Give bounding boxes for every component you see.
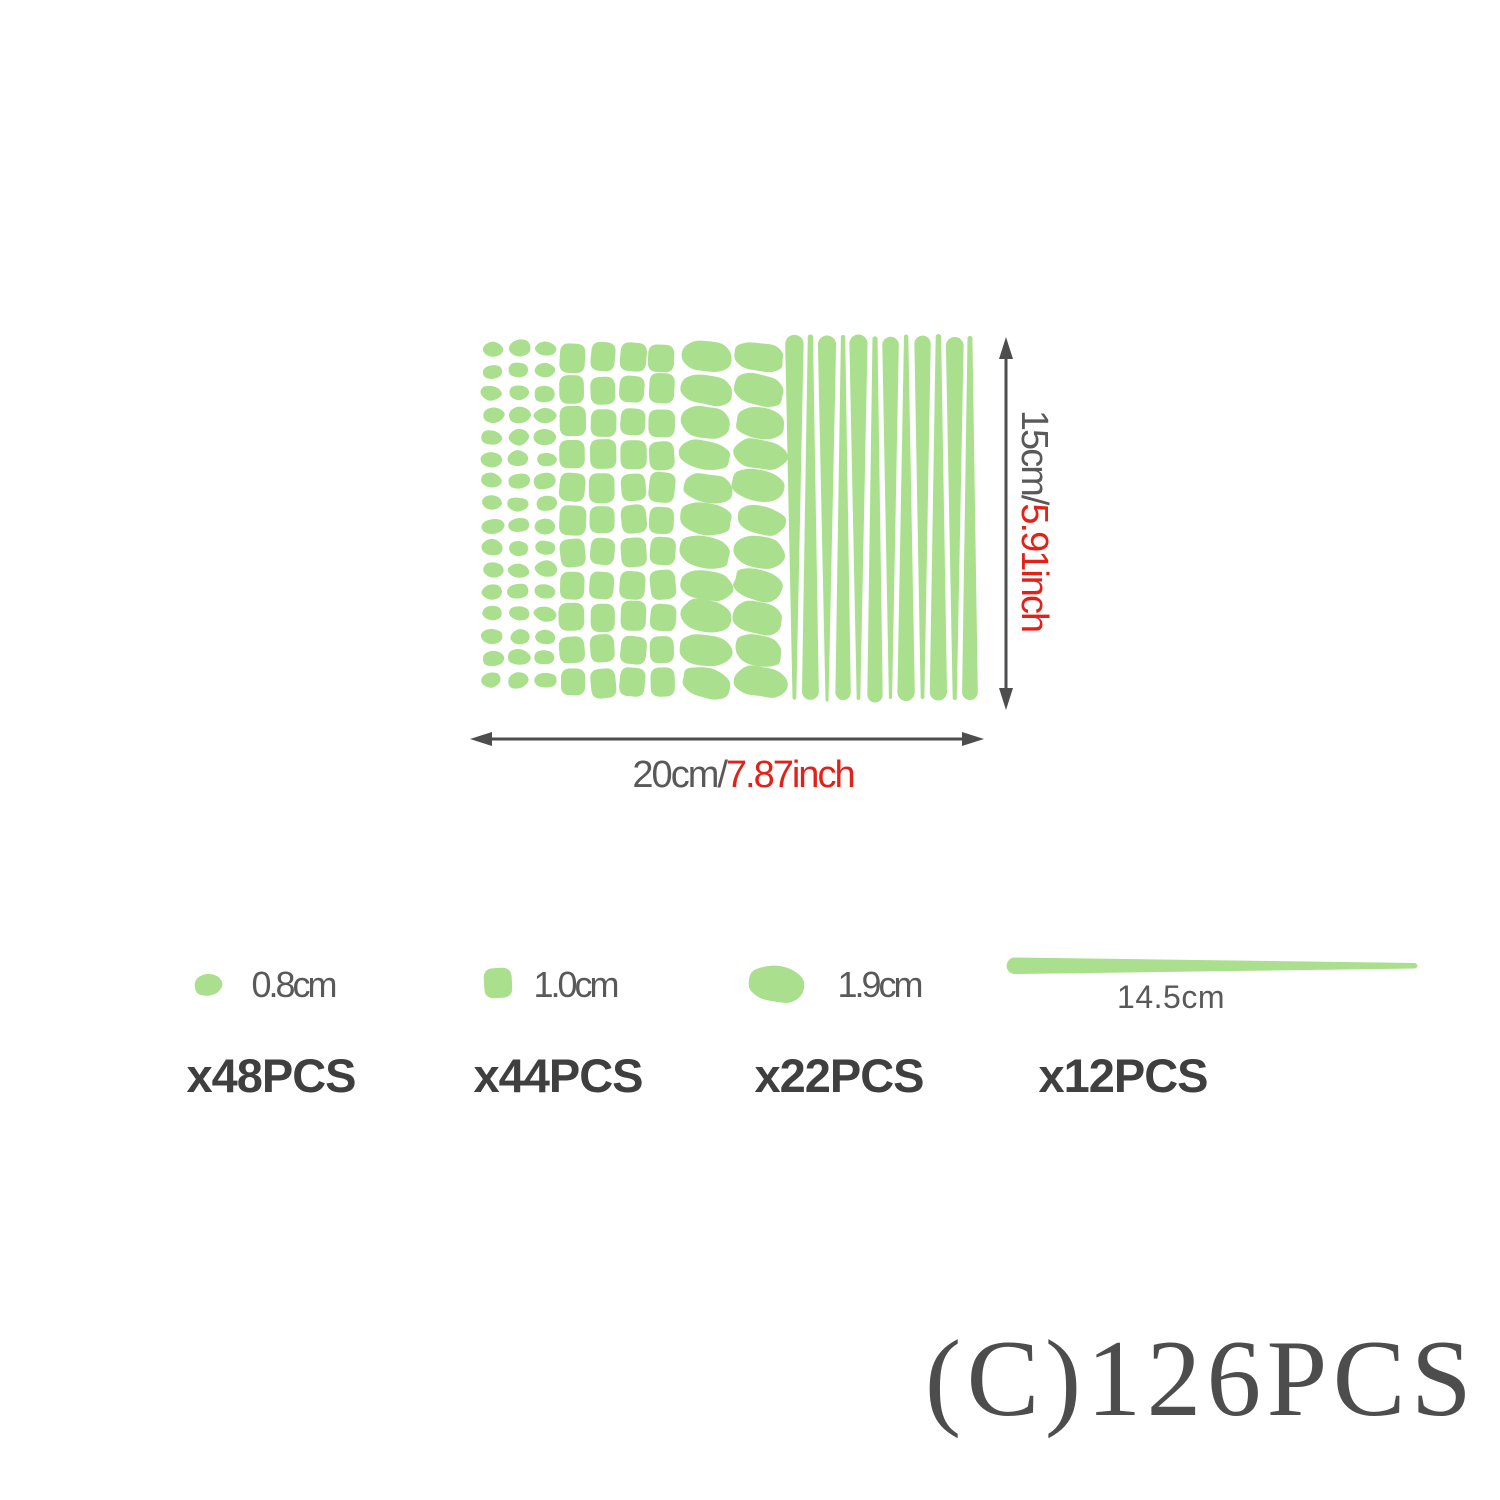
svg-text:14.5cm: 14.5cm xyxy=(1117,979,1225,1015)
svg-text:1.0cm: 1.0cm xyxy=(533,964,617,1005)
svg-text:15cm/5.91inch: 15cm/5.91inch xyxy=(1013,410,1055,631)
svg-text:20cm/7.87inch: 20cm/7.87inch xyxy=(632,754,853,796)
svg-text:x48PCS: x48PCS xyxy=(186,1049,355,1102)
svg-text:(C)126PCS: (C)126PCS xyxy=(925,1318,1477,1439)
svg-text:1.9cm: 1.9cm xyxy=(837,964,921,1005)
svg-text:x12PCS: x12PCS xyxy=(1038,1049,1207,1102)
svg-text:x22PCS: x22PCS xyxy=(754,1049,923,1102)
svg-text:x44PCS: x44PCS xyxy=(473,1049,642,1102)
svg-text:0.8cm: 0.8cm xyxy=(251,964,335,1005)
